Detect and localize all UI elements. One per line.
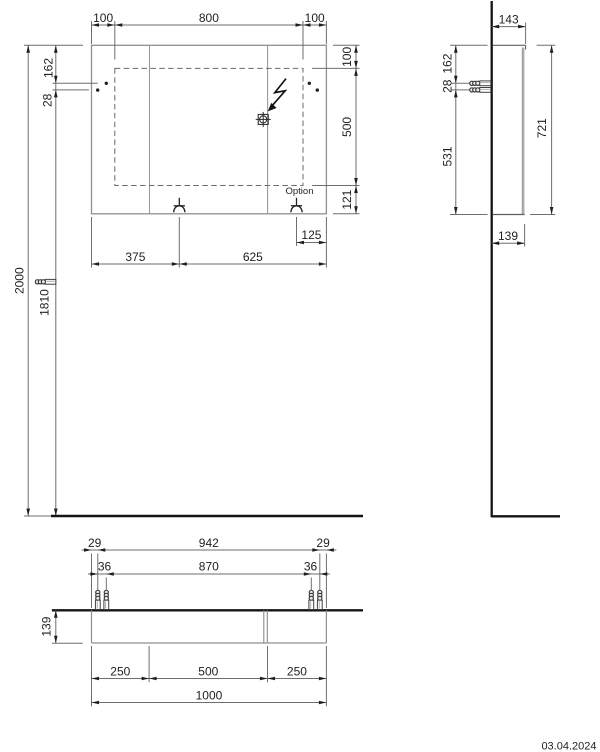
svg-text:100: 100 [305, 11, 325, 25]
svg-text:29: 29 [316, 536, 330, 550]
svg-text:139: 139 [40, 616, 54, 636]
svg-text:36: 36 [98, 560, 112, 574]
svg-text:125: 125 [301, 228, 321, 242]
svg-text:2000: 2000 [13, 267, 27, 294]
svg-text:162: 162 [441, 53, 455, 73]
svg-text:121: 121 [340, 189, 354, 209]
svg-text:143: 143 [499, 12, 519, 26]
svg-text:625: 625 [243, 250, 263, 264]
svg-text:942: 942 [199, 536, 219, 550]
svg-text:800: 800 [199, 11, 219, 25]
svg-text:100: 100 [340, 47, 354, 67]
svg-text:03.04.2024: 03.04.2024 [541, 741, 596, 752]
svg-text:870: 870 [199, 560, 219, 574]
svg-text:531: 531 [441, 146, 455, 166]
svg-text:1000: 1000 [196, 688, 223, 702]
svg-text:500: 500 [340, 117, 354, 137]
svg-text:1810: 1810 [38, 289, 52, 316]
svg-text:29: 29 [88, 536, 102, 550]
svg-text:250: 250 [287, 664, 307, 678]
svg-text:Option: Option [286, 186, 314, 197]
svg-text:28: 28 [441, 79, 455, 93]
svg-text:36: 36 [304, 560, 318, 574]
svg-text:100: 100 [93, 11, 113, 25]
svg-text:250: 250 [110, 664, 130, 678]
svg-text:28: 28 [40, 93, 54, 107]
svg-text:162: 162 [41, 58, 55, 78]
svg-text:500: 500 [198, 664, 218, 678]
svg-text:721: 721 [535, 118, 549, 138]
svg-text:139: 139 [498, 229, 518, 243]
svg-text:375: 375 [125, 250, 145, 264]
